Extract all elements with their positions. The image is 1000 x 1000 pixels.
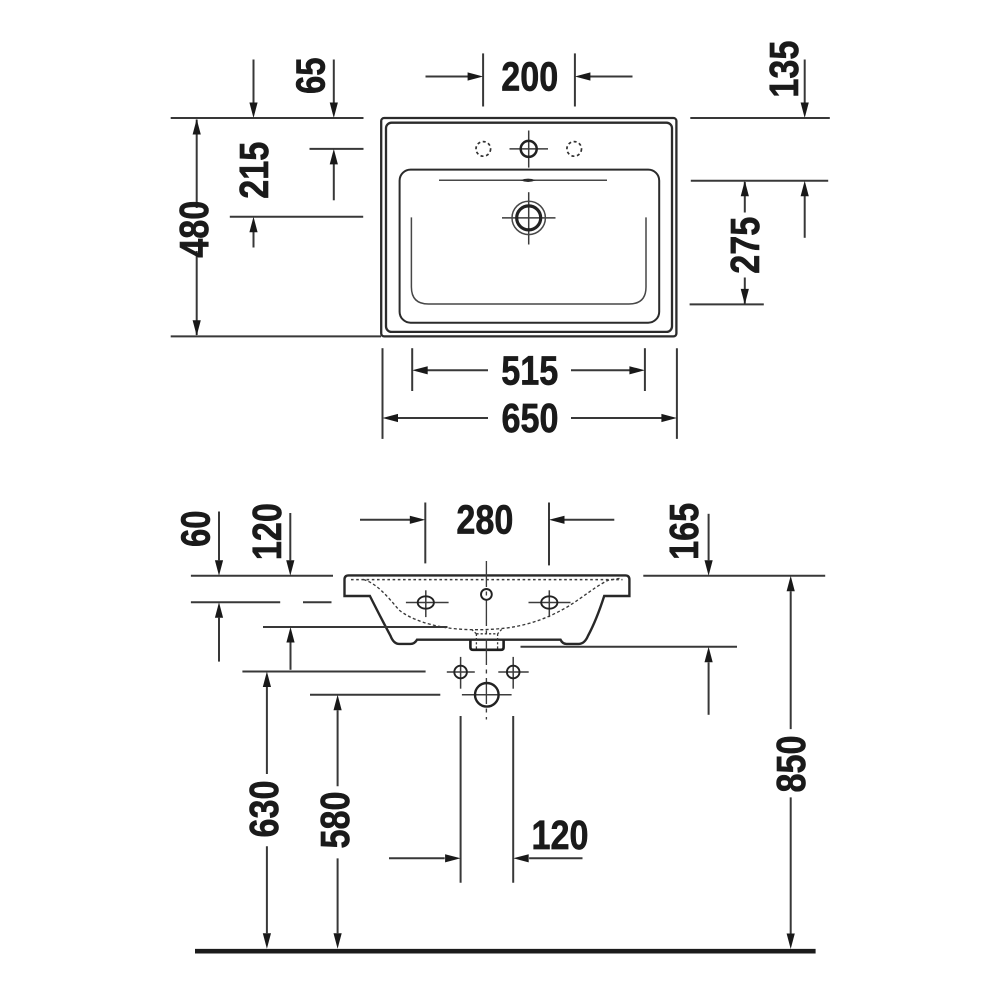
- svg-text:515: 515: [501, 348, 558, 394]
- svg-text:280: 280: [456, 497, 513, 543]
- svg-text:120: 120: [532, 812, 589, 858]
- svg-text:135: 135: [761, 41, 807, 98]
- svg-text:60: 60: [173, 510, 219, 547]
- svg-text:215: 215: [231, 142, 277, 199]
- svg-text:630: 630: [241, 781, 287, 838]
- svg-text:200: 200: [501, 54, 558, 100]
- svg-text:580: 580: [312, 792, 358, 849]
- svg-text:120: 120: [244, 503, 290, 560]
- svg-text:65: 65: [288, 58, 334, 95]
- svg-text:850: 850: [768, 736, 814, 793]
- svg-text:165: 165: [661, 503, 707, 560]
- svg-text:275: 275: [722, 217, 768, 274]
- svg-text:650: 650: [502, 395, 559, 441]
- svg-text:480: 480: [171, 201, 217, 258]
